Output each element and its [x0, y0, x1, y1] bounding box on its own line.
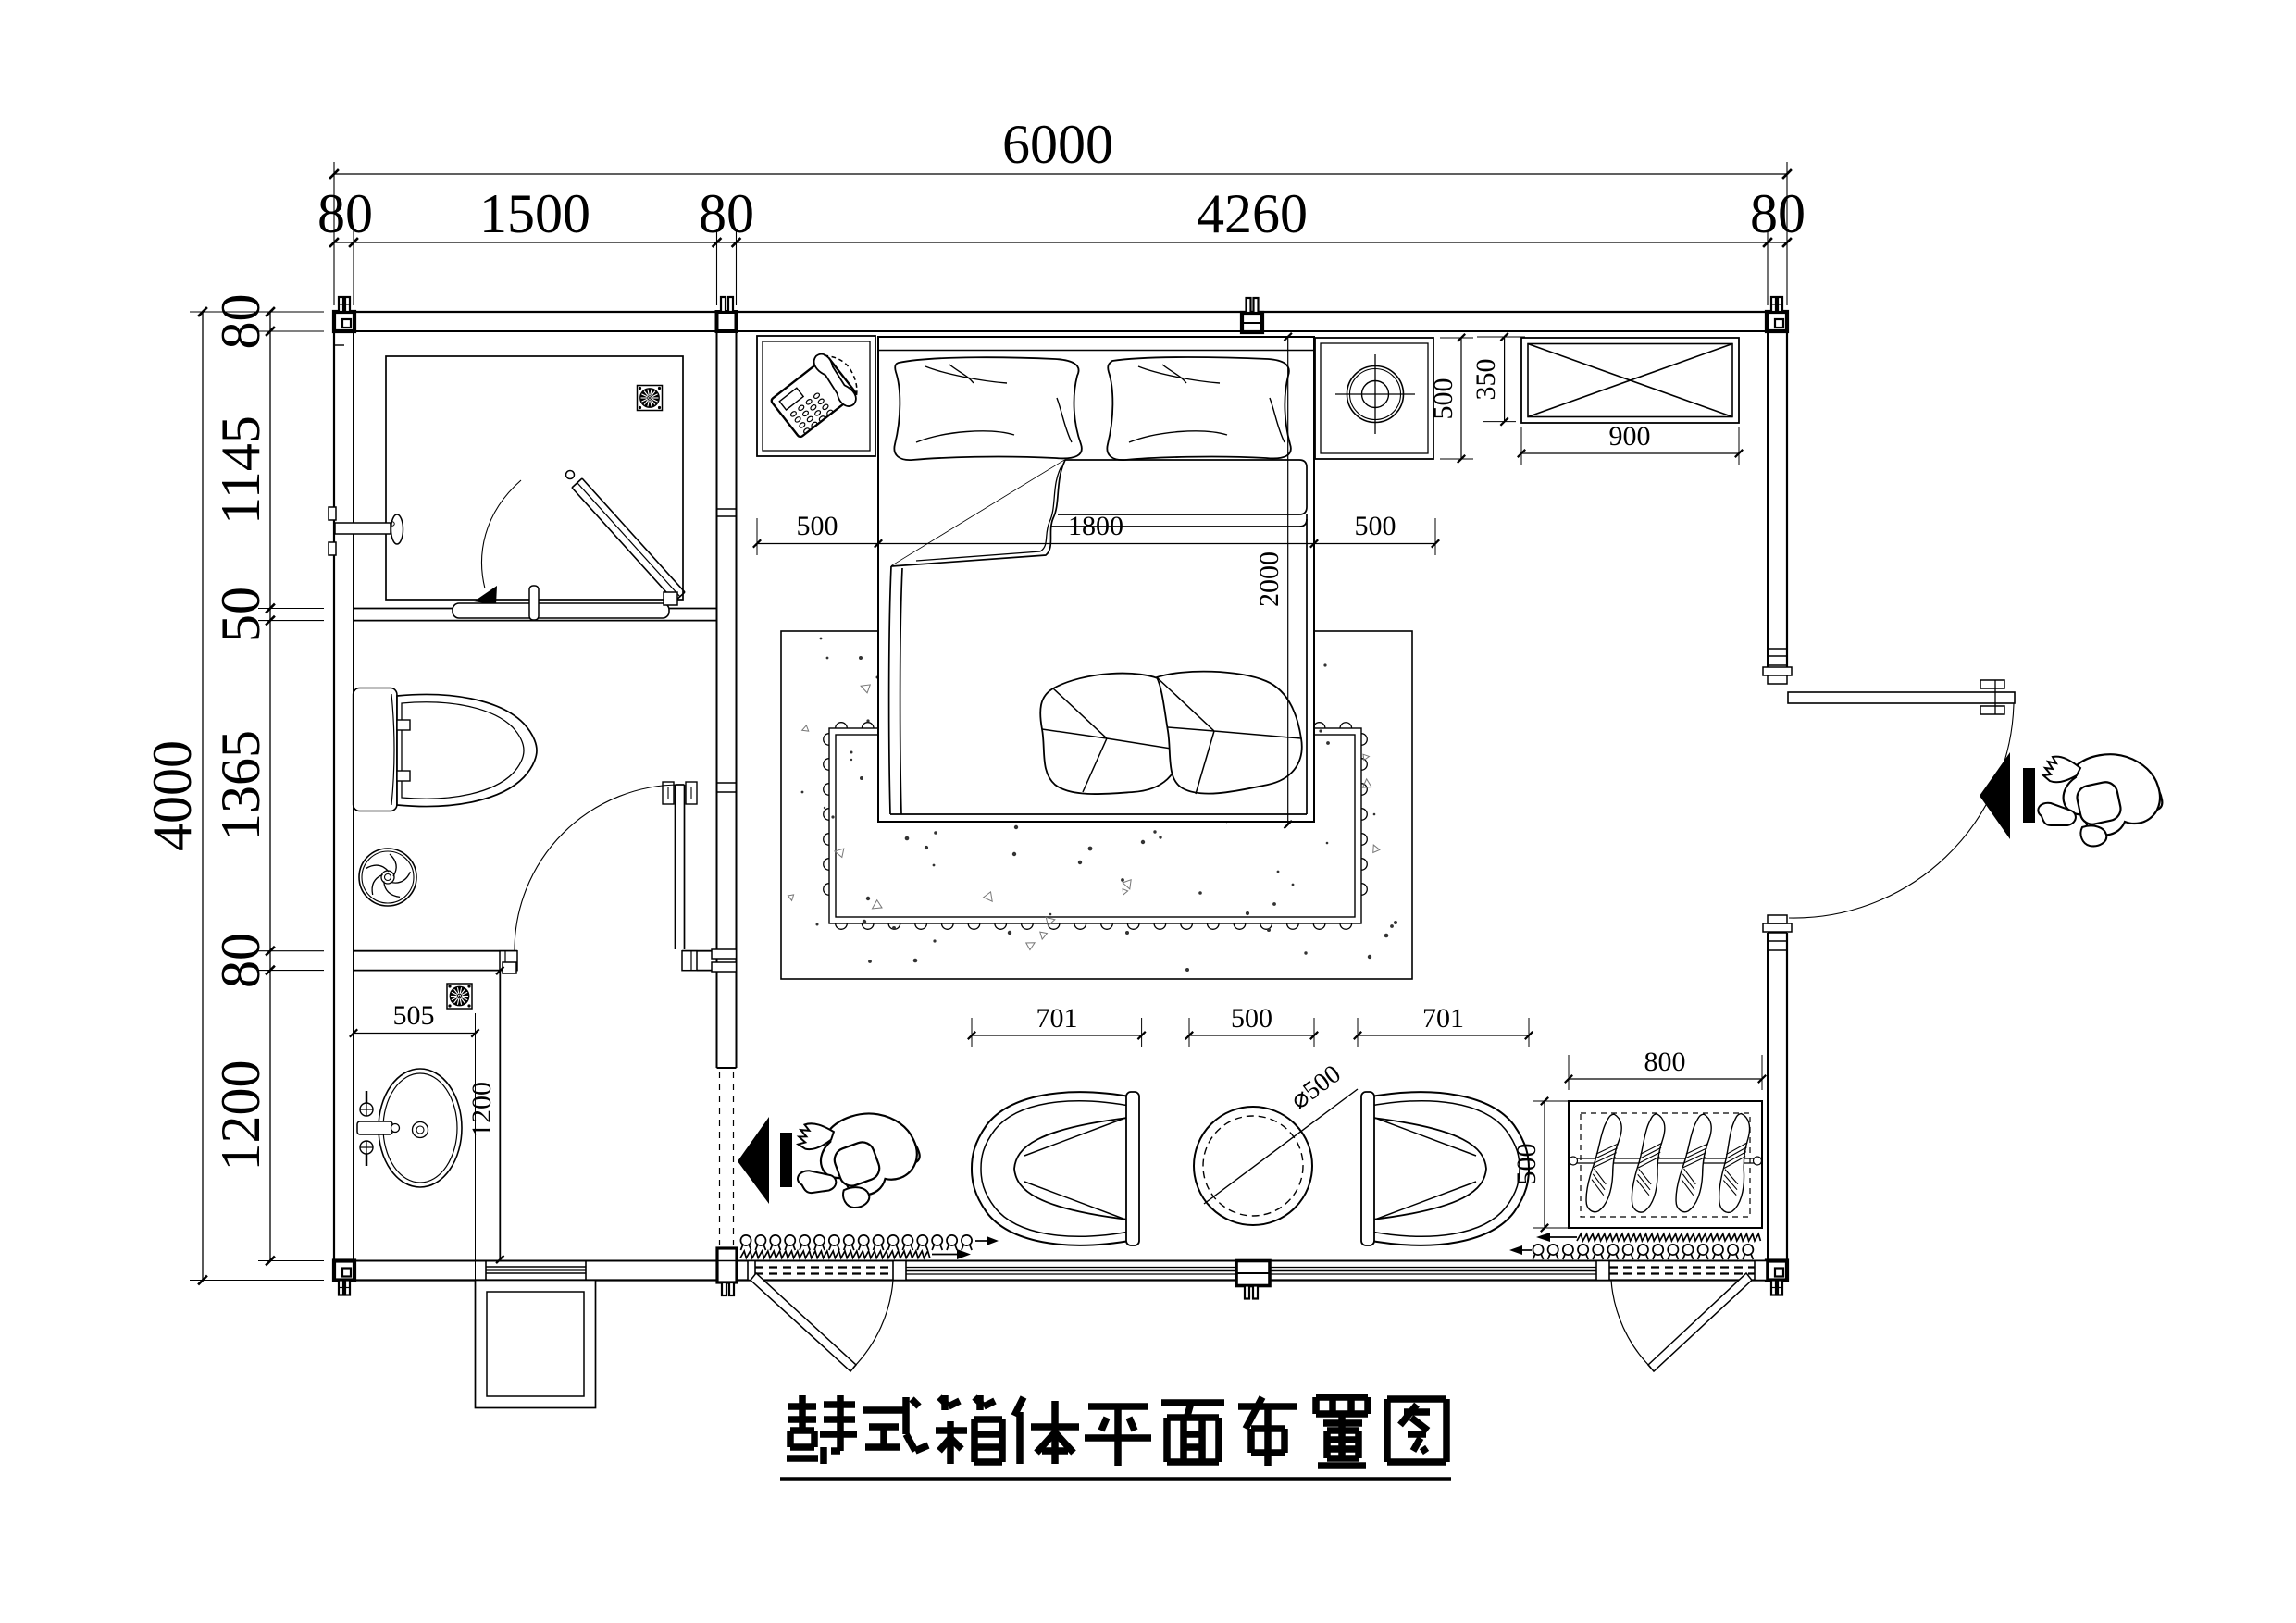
- svg-text:500: 500: [797, 511, 838, 541]
- svg-text:500: 500: [1511, 1144, 1542, 1185]
- svg-text:505: 505: [393, 1000, 435, 1031]
- svg-text:900: 900: [1609, 421, 1651, 452]
- svg-text:1800: 1800: [1068, 511, 1123, 541]
- svg-text:4000: 4000: [142, 740, 203, 851]
- svg-text:500: 500: [1428, 378, 1458, 420]
- svg-text:1200: 1200: [210, 1060, 271, 1171]
- svg-text:500: 500: [1231, 1003, 1272, 1034]
- svg-text:1145: 1145: [210, 415, 271, 525]
- svg-text:4260: 4260: [1197, 183, 1308, 244]
- svg-text:80: 80: [317, 183, 373, 244]
- svg-text:800: 800: [1644, 1047, 1686, 1077]
- svg-text:80: 80: [1750, 183, 1806, 244]
- svg-text:1365: 1365: [210, 730, 271, 841]
- svg-text:701: 701: [1036, 1003, 1078, 1034]
- svg-text:701: 701: [1422, 1003, 1464, 1034]
- svg-text:80: 80: [699, 183, 754, 244]
- svg-text:80: 80: [210, 294, 271, 350]
- svg-text:2000: 2000: [1254, 551, 1285, 607]
- svg-text:1500: 1500: [479, 183, 590, 244]
- svg-text:6000: 6000: [1002, 114, 1113, 175]
- svg-text:350: 350: [1471, 359, 1501, 401]
- svg-text:50: 50: [210, 587, 271, 642]
- svg-text:80: 80: [210, 933, 271, 988]
- svg-text:500: 500: [1355, 511, 1396, 541]
- svg-text:1200: 1200: [466, 1082, 497, 1137]
